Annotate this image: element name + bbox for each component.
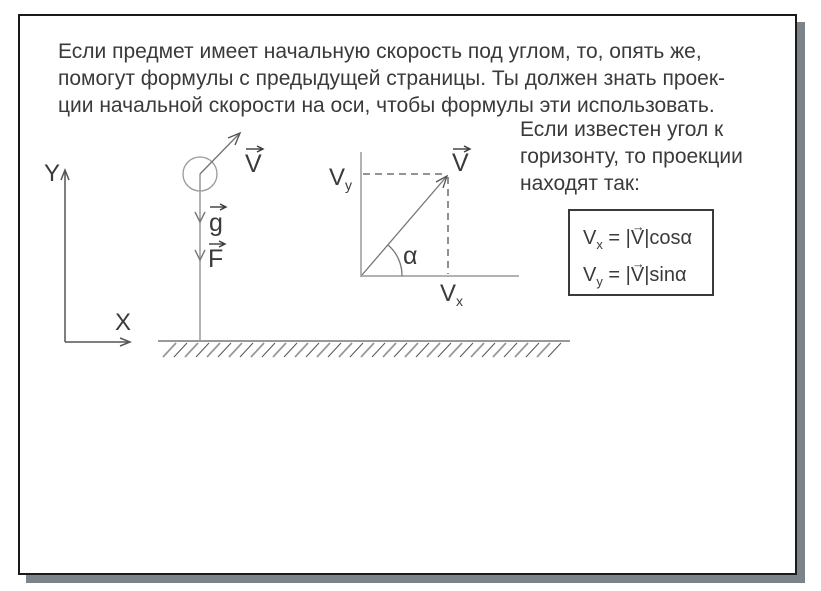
vector-overarrow-icon: →	[632, 212, 645, 242]
hatch-mark	[240, 343, 253, 357]
hatch-mark	[504, 343, 517, 357]
x-axis-label: X	[115, 309, 131, 336]
angle-arc	[388, 245, 402, 276]
vx-label-sub: x	[456, 293, 463, 309]
formula-mid: = |	[603, 227, 631, 249]
plot-velocity-label: V	[452, 149, 469, 177]
force-label: F	[208, 245, 223, 273]
hatch-mark	[493, 343, 506, 357]
side-note-line: Если известен угол к	[520, 116, 785, 143]
hatch-mark	[449, 343, 462, 357]
hatch-mark	[284, 343, 297, 357]
vy-formula: Vy = |→V|sinα	[583, 260, 712, 297]
formula-end: |cosα	[644, 227, 692, 249]
hatch-mark	[548, 343, 561, 357]
hatch-mark	[537, 343, 550, 357]
vx-label-base: V	[440, 280, 456, 307]
hatch-mark	[471, 343, 484, 357]
vx-label: Vx	[440, 280, 463, 309]
hatch-mark	[416, 343, 429, 357]
velocity-label: V	[245, 150, 262, 178]
intro-line: помогут формулы с предыдущей страницы. Т…	[58, 65, 778, 92]
formula-end: |sinα	[644, 264, 686, 286]
formula-base: V	[583, 227, 596, 249]
formula-box: Vx = |→V|cosα Vy = |→V|sinα	[568, 209, 714, 296]
side-note-line: горизонту, то проекции	[520, 143, 785, 170]
hatch-mark	[163, 343, 176, 357]
hatch-mark	[317, 343, 330, 357]
vy-label-base: V	[329, 164, 345, 191]
intro-line: ции начальной скорости на оси, чтобы фор…	[58, 92, 778, 119]
hatch-mark	[174, 343, 187, 357]
hatch-mark	[526, 343, 539, 357]
hatch-mark	[273, 343, 286, 357]
hatch-mark	[207, 343, 220, 357]
hatch-mark	[218, 343, 231, 357]
hatch-mark	[427, 343, 440, 357]
hatch-mark	[306, 343, 319, 357]
side-note: Если известен угол к горизонту, то проек…	[520, 116, 785, 197]
hatch-mark	[262, 343, 275, 357]
hatch-mark	[339, 343, 352, 357]
hatch-mark	[350, 343, 363, 357]
hatch-mark	[460, 343, 473, 357]
formula-base: V	[583, 264, 596, 286]
ground-hatching	[163, 343, 561, 357]
hatch-mark	[328, 343, 341, 357]
hatch-mark	[196, 343, 209, 357]
side-note-line: находят так:	[520, 170, 785, 197]
vy-label-sub: y	[345, 177, 352, 193]
page: Y X V g F α Vy Vx V	[18, 14, 797, 575]
formula-mid: = |	[603, 264, 631, 286]
vector-v: →V	[631, 260, 644, 290]
intro-line: Если предмет имеет начальную скорость по…	[58, 38, 778, 65]
hatch-mark	[229, 343, 242, 357]
hatch-mark	[361, 343, 374, 357]
vy-label: Vy	[329, 164, 352, 193]
hatch-mark	[438, 343, 451, 357]
hatch-mark	[515, 343, 528, 357]
angle-label: α	[403, 242, 417, 270]
hatch-mark	[372, 343, 385, 357]
hatch-mark	[405, 343, 418, 357]
hatch-mark	[482, 343, 495, 357]
hatch-mark	[251, 343, 264, 357]
y-axis-label: Y	[44, 160, 60, 187]
hatch-mark	[185, 343, 198, 357]
vector-overarrow-icon: →	[632, 249, 645, 279]
hatch-mark	[383, 343, 396, 357]
vx-formula: Vx = |→V|cosα	[583, 223, 712, 260]
velocity-vector	[200, 133, 240, 174]
gravity-label: g	[209, 209, 223, 237]
hatch-mark	[394, 343, 407, 357]
hatch-mark	[295, 343, 308, 357]
intro-text: Если предмет имеет начальную скорость по…	[58, 38, 778, 119]
